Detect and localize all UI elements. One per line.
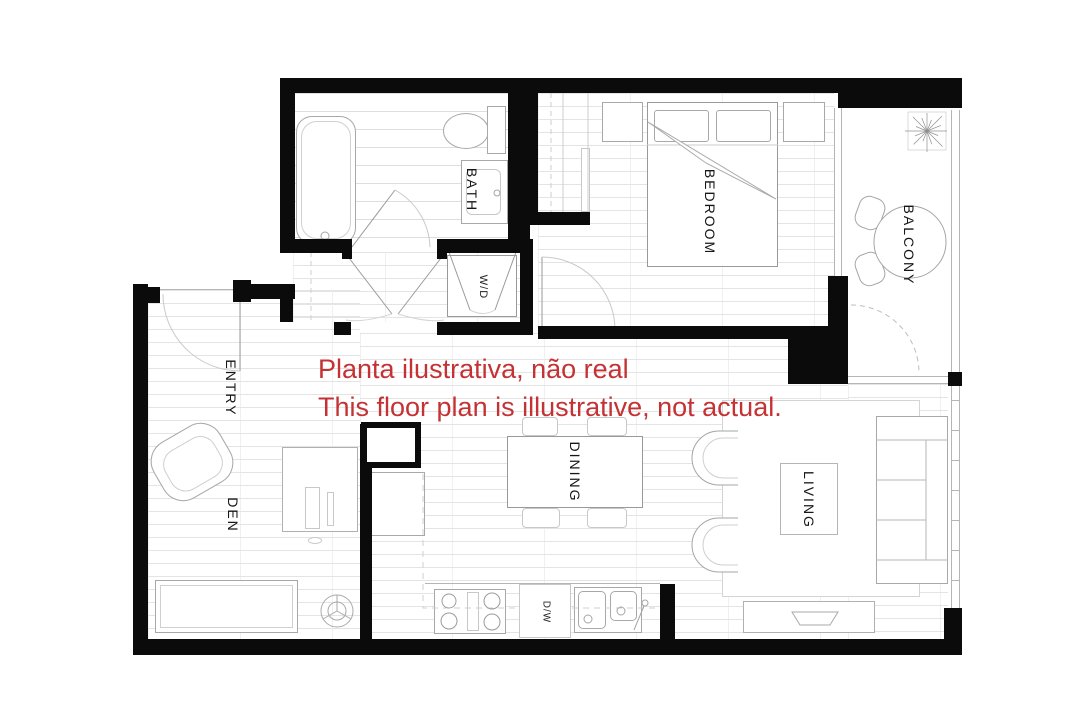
dishwasher-label: D/W	[541, 601, 552, 623]
wall-balcony-stub	[828, 276, 848, 328]
wall-bath-right	[508, 78, 530, 244]
wall-left-outer	[133, 284, 148, 655]
kitchen-cabinet-dashed-lines	[423, 474, 658, 608]
balcony-label: BALCONY	[901, 205, 917, 286]
wall-bath-bottom-right	[437, 239, 533, 253]
disclaimer-line-2: This floor plan is illustrative, not act…	[318, 392, 782, 422]
wall-left-connector-stub	[233, 280, 251, 302]
entry-label: ENTRY	[223, 359, 239, 416]
den-task-chair	[321, 595, 353, 627]
stove-burners	[441, 593, 500, 630]
wall-kitchen-living-stub	[660, 584, 675, 641]
wall-right-mid-block	[948, 372, 962, 386]
bedroom-label: BEDROOM	[702, 169, 718, 255]
bath-label: BATH	[464, 168, 480, 212]
wall-bottom-outer	[133, 639, 962, 655]
sink-fixtures	[584, 600, 648, 630]
sofa-cushion-lines	[876, 440, 948, 560]
wall-bedroom-bottom	[538, 326, 788, 339]
floor-plan: BATH W/D BEDROOM BALCONY ENTRY DEN DININ…	[0, 0, 1080, 720]
wall-vestibule-bottom-stub	[334, 322, 351, 335]
wall-wd-right	[520, 239, 533, 335]
bedroom-closet-shelves	[551, 93, 588, 213]
den-armchair	[143, 415, 241, 508]
living-label: LIVING	[801, 471, 817, 529]
wall-left-hinge-stub	[148, 287, 160, 303]
wall-bedroom-closet-bottom	[528, 212, 590, 225]
dining-label: DINING	[567, 442, 583, 503]
wall-bath-left	[280, 78, 295, 253]
wall-balcony-header	[838, 78, 962, 108]
wall-bedroom-closet-left	[528, 93, 538, 215]
wall-corner-block	[788, 326, 848, 384]
living-accent-chair	[692, 431, 738, 572]
den-label: DEN	[225, 497, 241, 533]
tv	[792, 612, 838, 625]
plant	[905, 112, 947, 152]
hall-closet-box	[361, 422, 421, 468]
washer-dryer-label: W/D	[477, 275, 489, 299]
wall-bath-door-stub	[342, 243, 352, 259]
disclaimer-line-1: Planta ilustrativa, não real	[318, 354, 629, 384]
wall-right-bottom-block	[944, 608, 962, 655]
wall-vestibule-bottom-right	[437, 322, 533, 335]
